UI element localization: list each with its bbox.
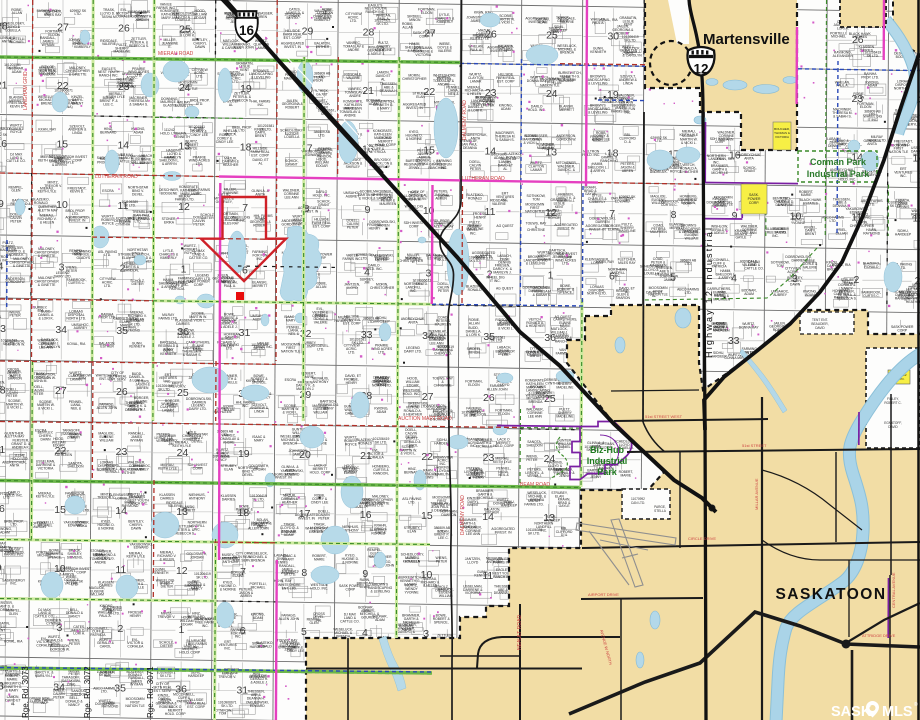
svg-text:SCHOLZ,DIETER: SCHOLZ,DIETER bbox=[130, 279, 145, 286]
svg-text:HILLSIDEFARM REALEST. CORP: HILLSIDEFARM REALEST. CORP bbox=[496, 73, 515, 84]
svg-text:PETERS,JASON &ABREN: PETERS,JASON &ABREN bbox=[434, 190, 449, 201]
svg-text:28: 28 bbox=[0, 21, 8, 33]
svg-text:ROBERT,MARIE: ROBERT,MARIE bbox=[312, 554, 327, 561]
svg-text:GUNTER,WILLIAMDANIEL: GUNTER,WILLIAMDANIEL bbox=[557, 438, 572, 449]
svg-text:DOELL,CALVINPETER: DOELL,CALVINPETER bbox=[318, 510, 330, 521]
svg-text:MACRINER,THERESA M.& SABAH S.: MACRINER,THERESA M.& SABAH S. bbox=[129, 96, 149, 107]
svg-text:101206419SK LTD.: 101206419SK LTD. bbox=[373, 437, 390, 444]
svg-text:Rge. Rd. 3073: Rge. Rd. 3073 bbox=[21, 666, 30, 718]
svg-text:34: 34 bbox=[422, 330, 434, 342]
svg-text:25: 25 bbox=[544, 393, 556, 405]
svg-text:26: 26 bbox=[485, 28, 497, 40]
svg-text:4: 4 bbox=[0, 261, 4, 273]
svg-text:15: 15 bbox=[423, 145, 435, 157]
svg-text:NEAULT ROAD: NEAULT ROAD bbox=[517, 615, 523, 650]
svg-text:10: 10 bbox=[56, 199, 68, 211]
svg-text:WURTZ,ROBERTROYCE: WURTZ,ROBERTROYCE bbox=[101, 215, 115, 226]
svg-text:34: 34 bbox=[53, 682, 65, 694]
svg-text:23: 23 bbox=[852, 93, 864, 105]
svg-text:5: 5 bbox=[301, 626, 307, 638]
svg-text:NIENHUIS,ANTHONY: NIENHUIS,ANTHONY bbox=[486, 557, 503, 564]
svg-text:CORP.: CORP. bbox=[749, 201, 760, 205]
svg-text:KKHN, RAY: KKHN, RAY bbox=[596, 260, 615, 264]
svg-text:HOOD,WILLIAMEDGAR: HOOD,WILLIAMEDGAR bbox=[343, 464, 357, 475]
svg-text:RIDSDALE,VALERIE: RIDSDALE,VALERIE bbox=[344, 72, 362, 79]
svg-text:Biz-Hub: Biz-Hub bbox=[590, 445, 624, 455]
svg-text:3: 3 bbox=[59, 262, 65, 274]
svg-text:23: 23 bbox=[485, 87, 497, 99]
svg-text:CAN LTD.: CAN LTD. bbox=[631, 501, 645, 505]
svg-text:MIERAU ROAD: MIERAU ROAD bbox=[158, 51, 194, 57]
svg-text:DOELL,CALVINPETER: DOELL,CALVINPETER bbox=[32, 385, 44, 396]
svg-text:PETERS,JASON &ABREN: PETERS,JASON &ABREN bbox=[239, 587, 254, 598]
svg-text:ROBERT,MARIE: ROBERT,MARIE bbox=[799, 190, 814, 197]
svg-text:RAYMOND,ALEXANDER: RAYMOND,ALEXANDER bbox=[833, 51, 854, 58]
svg-text:27: 27 bbox=[55, 385, 67, 397]
svg-text:12: 12 bbox=[693, 62, 708, 77]
svg-text:MLS: MLS bbox=[882, 704, 913, 720]
svg-text:AG QUEST: AG QUEST bbox=[554, 315, 571, 319]
svg-text:27: 27 bbox=[422, 391, 434, 403]
svg-text:ATTRIDGE DRIVE: ATTRIDGE DRIVE bbox=[862, 633, 896, 638]
svg-text:20: 20 bbox=[299, 449, 311, 461]
svg-text:CENTRAL AVENUE: CENTRAL AVENUE bbox=[891, 572, 896, 608]
svg-text:Park: Park bbox=[597, 467, 618, 477]
svg-text:USSELMAN,DARRENE &VICTORIA: USSELMAN,DARRENE &VICTORIA bbox=[36, 460, 56, 471]
svg-text:MACRINER,THERESA M.& SABAH S.: MACRINER,THERESA M.& SABAH S. bbox=[495, 131, 515, 142]
svg-text:FAMBROOK,CURTIS C.: FAMBROOK,CURTIS C. bbox=[659, 200, 679, 207]
svg-text:WALDNER,CORINNELEE ANN: WALDNER,CORINNELEE ANN bbox=[283, 189, 301, 200]
svg-text:HILLSIDEFARM REALEST. CORP: HILLSIDEFARM REALEST. CORP bbox=[283, 29, 302, 40]
svg-text:SCOBIE,MARTIN W.& VICKI L.: SCOBIE,MARTIN W.& VICKI L. bbox=[189, 312, 207, 323]
svg-text:LEGENDDAIRY LTD.: LEGENDDAIRY LTD. bbox=[404, 346, 422, 353]
svg-text:MACRINER,THERESA M.& SABAH S.: MACRINER,THERESA M.& SABAH S. bbox=[832, 108, 852, 119]
svg-text:USSELMAN,DARRENE &VICTORIA: USSELMAN,DARRENE &VICTORIA bbox=[414, 46, 434, 57]
svg-text:BLAZEIKO,RONALD: BLAZEIKO,RONALD bbox=[504, 152, 521, 159]
svg-text:22: 22 bbox=[57, 80, 69, 92]
svg-text:BORGER,ELAINE: BORGER,ELAINE bbox=[134, 396, 149, 403]
svg-text:GREEN SIDEFARMS LTD.: GREEN SIDEFARMS LTD. bbox=[364, 500, 385, 507]
svg-text:AUCTION MART ROAD: AUCTION MART ROAD bbox=[398, 416, 452, 422]
svg-text:MATLOCK,WILLIAM J.& CAROLYN: MATLOCK,WILLIAM J.& CAROLYN bbox=[41, 338, 61, 349]
svg-text:MAGLIOE,EUGENEWILLIAM: MAGLIOE,EUGENEWILLIAM bbox=[683, 230, 699, 241]
svg-text:BLAZEIKO,RONALD: BLAZEIKO,RONALD bbox=[32, 198, 49, 205]
svg-text:SASK: SASK bbox=[831, 704, 872, 720]
svg-text:LEGENDDAIRY LTD.: LEGENDDAIRY LTD. bbox=[189, 404, 207, 411]
svg-text:LUTHERAN ROAD: LUTHERAN ROAD bbox=[95, 174, 138, 180]
svg-text:VICTORIA: VICTORIA bbox=[775, 135, 789, 139]
svg-text:KKHN, RAY: KKHN, RAY bbox=[246, 379, 265, 383]
svg-text:SCOBIE,MARTIN W.& VICKI L.: SCOBIE,MARTIN W.& VICKI L. bbox=[6, 399, 24, 410]
svg-text:SCOBIE,MARTIN W.& VICKI L.: SCOBIE,MARTIN W.& VICKI L. bbox=[282, 404, 300, 415]
svg-text:ROBIE,ALLAN: ROBIE,ALLAN bbox=[469, 318, 481, 325]
svg-text:PETERS,JASON &ABREN: PETERS,JASON &ABREN bbox=[136, 379, 151, 390]
svg-text:21: 21 bbox=[0, 79, 8, 91]
svg-text:5: 5 bbox=[670, 271, 676, 283]
svg-text:®: ® bbox=[914, 701, 918, 708]
svg-text:3: 3 bbox=[425, 267, 431, 279]
svg-text:9: 9 bbox=[365, 204, 371, 216]
svg-text:KINZEL,DARYLBRENT: KINZEL,DARYLBRENT bbox=[804, 225, 817, 236]
svg-text:KOVAL, RIA: KOVAL, RIA bbox=[599, 18, 618, 22]
svg-text:NIENHUIS,ANTHONY: NIENHUIS,ANTHONY bbox=[222, 557, 239, 564]
svg-text:2: 2 bbox=[853, 274, 859, 286]
svg-text:7: 7 bbox=[242, 202, 248, 214]
svg-text:SASKATOON: SASKATOON bbox=[775, 586, 886, 603]
svg-text:MACRINER,THERESA M.& SABAH S.: MACRINER,THERESA M.& SABAH S. bbox=[182, 346, 202, 357]
svg-text:SCHICK,GRANT: SCHICK,GRANT bbox=[556, 16, 570, 23]
svg-text:19: 19 bbox=[238, 448, 250, 460]
svg-text:GREEN SIDEFARMS LTD.: GREEN SIDEFARMS LTD. bbox=[29, 697, 50, 704]
svg-text:101201581SK LTD.: 101201581SK LTD. bbox=[4, 63, 21, 70]
svg-text:12: 12 bbox=[545, 207, 557, 219]
svg-text:AG QUEST: AG QUEST bbox=[496, 224, 513, 228]
svg-text:36: 36 bbox=[175, 683, 187, 695]
svg-text:GUENTHER,ALETTA MAY: GUENTHER,ALETTA MAY bbox=[4, 431, 25, 438]
svg-text:DOELL,CALVINPETER: DOELL,CALVINPETER bbox=[437, 282, 449, 293]
svg-text:23: 23 bbox=[116, 446, 128, 458]
svg-text:FLETCHER,MILES RAY: FLETCHER,MILES RAY bbox=[618, 258, 637, 265]
svg-text:LANGHAM GRID: LANGHAM GRID bbox=[23, 71, 29, 110]
svg-text:21: 21 bbox=[360, 450, 372, 462]
svg-text:101206419SK LTD.: 101206419SK LTD. bbox=[461, 410, 478, 417]
svg-text:DAVID: DAVID bbox=[815, 326, 825, 330]
svg-text:SCHOLZ,DIETER: SCHOLZ,DIETER bbox=[159, 641, 174, 648]
svg-text:WHELAN,PAUL A.: WHELAN,PAUL A. bbox=[468, 45, 483, 52]
svg-text:33: 33 bbox=[361, 329, 373, 341]
svg-text:31: 31 bbox=[236, 684, 248, 696]
svg-text:FAMBROOK,CURTIS C.: FAMBROOK,CURTIS C. bbox=[861, 291, 881, 298]
svg-text:6: 6 bbox=[240, 625, 246, 637]
svg-text:18: 18 bbox=[607, 148, 619, 160]
svg-text:24: 24 bbox=[177, 447, 189, 459]
svg-text:30: 30 bbox=[607, 30, 619, 42]
svg-text:1: 1 bbox=[178, 624, 184, 636]
svg-text:ROBERT C.: ROBERT C. bbox=[884, 401, 901, 405]
svg-text:101201581SK LTD.: 101201581SK LTD. bbox=[1, 339, 18, 346]
svg-text:8: 8 bbox=[671, 209, 677, 221]
svg-text:51st STREET WEST: 51st STREET WEST bbox=[645, 414, 683, 419]
svg-text:BRAMMER,GARTH &MICHELLE: BRAMMER,GARTH &MICHELLE bbox=[475, 438, 493, 449]
svg-text:SCHOLZ,DIETER: SCHOLZ,DIETER bbox=[200, 213, 215, 220]
svg-text:22: 22 bbox=[424, 86, 436, 98]
svg-text:101206419SK LTD.: 101206419SK LTD. bbox=[622, 35, 639, 42]
svg-text:1: 1 bbox=[181, 263, 187, 275]
svg-text:MIERAU,RICHARD V.& HELEN: MIERAU,RICHARD V.& HELEN bbox=[157, 551, 176, 562]
svg-text:DOELL,CALVINPETER: DOELL,CALVINPETER bbox=[405, 428, 417, 439]
svg-text:SCOBIE,MARTIN W.& VICKI L.: SCOBIE,MARTIN W.& VICKI L. bbox=[37, 400, 55, 411]
svg-text:HONBERG,CURTIS &RANDON,: HONBERG,CURTIS &RANDON, bbox=[315, 148, 333, 159]
svg-text:KOVAL, RIA: KOVAL, RIA bbox=[67, 342, 86, 346]
svg-text:WIENS,PETER: WIENS,PETER bbox=[436, 556, 448, 563]
svg-text:26: 26 bbox=[116, 386, 128, 398]
svg-text:LEGENDDAIRY LTD.: LEGENDDAIRY LTD. bbox=[193, 274, 211, 281]
svg-text:MAGLIOE,EUGENEWILLIAM: MAGLIOE,EUGENEWILLIAM bbox=[89, 586, 105, 597]
svg-text:SCOBIE,MARTIN W.& VICKI L.: SCOBIE,MARTIN W.& VICKI L. bbox=[523, 134, 541, 145]
svg-text:BLANSKI,MERRITT: BLANSKI,MERRITT bbox=[559, 104, 574, 111]
svg-text:27: 27 bbox=[57, 22, 69, 34]
svg-text:HOOD,WILLIAMEDGAR: HOOD,WILLIAMEDGAR bbox=[315, 157, 329, 168]
svg-text:18: 18 bbox=[238, 507, 250, 519]
svg-text:WISHLOW,GERALD R.& ADELE J.: WISHLOW,GERALD R.& ADELE J. bbox=[220, 318, 238, 329]
svg-text:BRAMMER,GARTH &MICHELLE: BRAMMER,GARTH &MICHELLE bbox=[476, 489, 494, 500]
svg-text:HASKINS,LLOYD &MARILYN: HASKINS,LLOYD &MARILYN bbox=[434, 466, 450, 477]
svg-text:BLAZEIKO,RONALD: BLAZEIKO,RONALD bbox=[863, 262, 880, 269]
svg-text:CIRCLE DRIVE: CIRCLE DRIVE bbox=[688, 536, 716, 541]
svg-text:MACRINER,THERESA M.& SABAH S.: MACRINER,THERESA M.& SABAH S. bbox=[532, 286, 552, 297]
svg-text:WESTSIDEHOLD. INC.: WESTSIDEHOLD. INC. bbox=[403, 388, 421, 395]
svg-text:16: 16 bbox=[0, 503, 5, 515]
svg-text:DAVID: DAVID bbox=[888, 425, 898, 429]
svg-text:KRAHN,BRAD &GAYLE: KRAHN,BRAD &GAYLE bbox=[735, 229, 748, 240]
svg-text:UMSAHOC,AUBREY: UMSAHOC,AUBREY bbox=[71, 323, 89, 330]
svg-text:7: 7 bbox=[609, 208, 615, 220]
svg-text:REIMER,GLEN &SHARON: REIMER,GLEN &SHARON bbox=[616, 289, 631, 300]
svg-text:SCHICK,GRANT: SCHICK,GRANT bbox=[743, 166, 757, 173]
svg-text:11: 11 bbox=[485, 206, 496, 218]
svg-text:14: 14 bbox=[482, 511, 494, 523]
svg-text:NIENHUIS,ANTHONY: NIENHUIS,ANTHONY bbox=[189, 493, 206, 500]
svg-text:101201581SK LTD.: 101201581SK LTD. bbox=[188, 125, 205, 132]
svg-text:Highway 12 Industrial: Highway 12 Industrial bbox=[704, 226, 714, 358]
svg-text:DESCHNER,BODGENE: DESCHNER,BODGENE bbox=[159, 188, 179, 195]
svg-text:14: 14 bbox=[484, 146, 496, 158]
svg-text:HASKINS,LLOYD &MARILYN: HASKINS,LLOYD &MARILYN bbox=[713, 321, 729, 332]
svg-text:35: 35 bbox=[114, 683, 126, 695]
svg-text:29: 29 bbox=[302, 25, 314, 37]
svg-text:13: 13 bbox=[543, 512, 555, 524]
svg-text:ROBIE,ALLAN: ROBIE,ALLAN bbox=[315, 282, 327, 289]
svg-text:Rge. Rd. 3071: Rge. Rd. 3071 bbox=[146, 666, 155, 718]
svg-text:MITCHENER,WALDNER,DAVID C. &: MITCHENER,WALDNER,DAVID C. & bbox=[396, 623, 417, 634]
svg-text:14: 14 bbox=[117, 140, 129, 152]
svg-text:PENNEL,LIANA,NEIL &: PENNEL,LIANA,NEIL & bbox=[69, 400, 83, 411]
svg-text:KOVAL, RIA: KOVAL, RIA bbox=[4, 639, 23, 643]
svg-text:BLANSKI,MERRITT: BLANSKI,MERRITT bbox=[252, 281, 267, 288]
svg-text:Rge. Rd. 3072: Rge. Rd. 3072 bbox=[83, 666, 92, 718]
svg-text:19: 19 bbox=[240, 83, 252, 95]
svg-text:FRIESEN,DARCY K. &MARILYN J.: FRIESEN,DARCY K. &MARILYN J. bbox=[493, 264, 513, 275]
svg-text:RIDSDALE,VALERIE: RIDSDALE,VALERIE bbox=[490, 198, 508, 205]
svg-text:SIRDEEL,MINON: SIRDEEL,MINON bbox=[467, 347, 482, 354]
svg-text:28: 28 bbox=[0, 384, 6, 396]
svg-text:10: 10 bbox=[421, 569, 433, 581]
svg-text:13: 13 bbox=[176, 506, 188, 518]
svg-text:KOMGRATE,KATHLEENMARY ANN: KOMGRATE,KATHLEENMARY ANN bbox=[179, 185, 199, 196]
svg-text:BALATON,ESTHER: BALATON,ESTHER bbox=[426, 253, 442, 260]
svg-text:9: 9 bbox=[0, 198, 4, 210]
svg-text:WIEBE,DOYLE &VALERIE: WIEBE,DOYLE &VALERIE bbox=[64, 575, 79, 586]
svg-text:KKHN, RAY: KKHN, RAY bbox=[38, 128, 57, 132]
svg-text:17: 17 bbox=[299, 508, 311, 520]
svg-text:1: 1 bbox=[548, 269, 554, 281]
svg-text:33: 33 bbox=[728, 335, 740, 347]
svg-text:KRAHN,BRAD &GAYLE: KRAHN,BRAD &GAYLE bbox=[584, 185, 597, 196]
svg-text:WIENS,PETER: WIENS,PETER bbox=[68, 639, 80, 646]
svg-text:101157921SK LTD.: 101157921SK LTD. bbox=[374, 19, 391, 26]
svg-text:FREISTADT,KEVIN D.: FREISTADT,KEVIN D. bbox=[68, 186, 87, 193]
svg-text:FROESE,HENRY: FROESE,HENRY bbox=[128, 611, 143, 618]
svg-text:WISHLOW,GERALD R.& ADELE J.: WISHLOW,GERALD R.& ADELE J. bbox=[250, 674, 268, 685]
svg-text:27: 27 bbox=[424, 27, 436, 39]
svg-text:16: 16 bbox=[239, 23, 255, 38]
svg-text:18: 18 bbox=[240, 142, 252, 154]
svg-text:23: 23 bbox=[118, 81, 130, 93]
svg-text:Industrial: Industrial bbox=[587, 456, 628, 466]
svg-text:32: 32 bbox=[300, 328, 312, 340]
svg-text:15: 15 bbox=[421, 510, 433, 522]
svg-text:8: 8 bbox=[301, 567, 307, 579]
svg-text:25: 25 bbox=[177, 387, 189, 399]
svg-text:19: 19 bbox=[607, 89, 619, 101]
svg-text:PENNEL,LIANA,NEIL &: PENNEL,LIANA,NEIL & bbox=[496, 466, 510, 477]
svg-text:BLAZEIKO,RONALD: BLAZEIKO,RONALD bbox=[356, 438, 373, 445]
svg-text:4: 4 bbox=[731, 272, 737, 284]
svg-text:25: 25 bbox=[179, 23, 191, 35]
svg-text:SIRDEEL,MINON: SIRDEEL,MINON bbox=[407, 15, 422, 22]
svg-text:WISHLOW,GERALD R.& ADELE J.: WISHLOW,GERALD R.& ADELE J. bbox=[367, 45, 385, 56]
svg-text:ROBIE,ALLAN: ROBIE,ALLAN bbox=[11, 8, 23, 15]
svg-text:24: 24 bbox=[544, 453, 556, 465]
svg-text:22: 22 bbox=[55, 445, 67, 457]
svg-text:51st STREET: 51st STREET bbox=[742, 443, 767, 448]
svg-text:WESELUCK,MICHAEL &BRENDA: WESELUCK,MICHAEL &BRENDA bbox=[333, 628, 353, 639]
svg-text:35: 35 bbox=[483, 331, 495, 343]
svg-text:BORGER,ELAINE: BORGER,ELAINE bbox=[165, 399, 180, 406]
svg-text:TREMBLAY,JEAN PAUL& DEANNA: TREMBLAY,JEAN PAUL& DEANNA bbox=[431, 502, 450, 513]
svg-text:PORTELLI,MICHAEL: PORTELLI,MICHAEL bbox=[830, 31, 847, 38]
svg-text:WURTZ,ROBERTROYCE: WURTZ,ROBERTROYCE bbox=[183, 244, 197, 255]
svg-text:26: 26 bbox=[483, 392, 495, 404]
svg-text:26: 26 bbox=[852, 34, 864, 46]
svg-text:WIEBE,DOYLE &VALERIE: WIEBE,DOYLE &VALERIE bbox=[438, 42, 453, 53]
svg-text:34: 34 bbox=[55, 324, 67, 336]
svg-text:MIERAU,RICHARD V.& HELEN: MIERAU,RICHARD V.& HELEN bbox=[37, 214, 56, 225]
svg-text:4: 4 bbox=[0, 621, 1, 633]
svg-text:KINZEL,DARYLBRENT: KINZEL,DARYLBRENT bbox=[158, 694, 171, 705]
svg-text:ANDERSON,GORDON W.: ANDERSON,GORDON W. bbox=[50, 644, 70, 651]
svg-text:101206419SK LTD.: 101206419SK LTD. bbox=[156, 384, 173, 391]
svg-text:101206419SK LTD.: 101206419SK LTD. bbox=[194, 572, 211, 579]
svg-text:WALDNER,CORINNELEE ANN: WALDNER,CORINNELEE ANN bbox=[526, 408, 544, 419]
svg-text:11: 11 bbox=[118, 200, 129, 212]
svg-text:WESELUCK,MICHAEL &BRENDA: WESELUCK,MICHAEL &BRENDA bbox=[557, 44, 577, 55]
svg-text:MATLOCK,WILLIAM J.& CAROLYN: MATLOCK,WILLIAM J.& CAROLYN bbox=[623, 47, 643, 58]
svg-text:101206419SK LTD.: 101206419SK LTD. bbox=[282, 569, 299, 576]
svg-text:SANOTA,SHELDON: SANOTA,SHELDON bbox=[67, 461, 84, 468]
svg-text:ESCRA: ESCRA bbox=[35, 428, 47, 432]
svg-text:AIRPORT DRIVE: AIRPORT DRIVE bbox=[588, 592, 619, 597]
svg-text:10: 10 bbox=[790, 211, 802, 223]
svg-text:ROBERT,MARIE: ROBERT,MARIE bbox=[5, 674, 20, 681]
svg-text:35: 35 bbox=[116, 325, 128, 337]
svg-text:KLASSENDAIRIES: KLASSENDAIRIES bbox=[221, 494, 237, 501]
svg-text:12: 12 bbox=[178, 201, 190, 213]
svg-text:PETERS,LEROY L. &VERNA J.: PETERS,LEROY L. &VERNA J. bbox=[525, 467, 544, 478]
svg-text:KLASSENDAIRIES: KLASSENDAIRIES bbox=[159, 493, 175, 500]
svg-text:WURTZ,ROBERTROYCE: WURTZ,ROBERTROYCE bbox=[9, 123, 23, 134]
svg-text:KRAHN,BRAD &GAYLE: KRAHN,BRAD &GAYLE bbox=[558, 497, 571, 508]
svg-text:DOELL,CALVINPETER: DOELL,CALVINPETER bbox=[6, 387, 18, 398]
svg-text:MAGLIOE,EUGENEWILLIAM: MAGLIOE,EUGENEWILLIAM bbox=[98, 432, 114, 443]
svg-text:23: 23 bbox=[483, 452, 495, 464]
svg-text:13: 13 bbox=[178, 141, 190, 153]
svg-text:11: 11 bbox=[482, 570, 493, 582]
svg-text:FAMBROOK,CURTIS C.: FAMBROOK,CURTIS C. bbox=[67, 278, 87, 285]
svg-text:16: 16 bbox=[729, 150, 741, 162]
svg-text:14: 14 bbox=[115, 505, 127, 517]
svg-text:HOOD,WILLIAMEDGAR: HOOD,WILLIAMEDGAR bbox=[406, 377, 420, 388]
svg-text:101206419SK LTD.: 101206419SK LTD. bbox=[437, 345, 454, 352]
svg-text:9: 9 bbox=[0, 562, 2, 574]
svg-text:RIDSDALE,VALERIE: RIDSDALE,VALERIE bbox=[100, 39, 118, 46]
svg-text:STELLA: STELLA bbox=[654, 509, 667, 513]
svg-text:MILLAR AVENUE: MILLAR AVENUE bbox=[754, 478, 759, 510]
svg-text:WHELAN,PAUL A.: WHELAN,PAUL A. bbox=[835, 80, 850, 87]
svg-text:HILLSIDEFARM REALEST. CORP: HILLSIDEFARM REALEST. CORP bbox=[312, 218, 331, 229]
svg-text:BORGER,ELAINE: BORGER,ELAINE bbox=[606, 224, 621, 231]
svg-text:FLETCHER,MILES RAY: FLETCHER,MILES RAY bbox=[44, 10, 63, 17]
svg-text:SCHICK,GRANT: SCHICK,GRANT bbox=[317, 199, 331, 206]
svg-text:21: 21 bbox=[362, 85, 374, 97]
svg-text:BLAZEIKO,RONALD: BLAZEIKO,RONALD bbox=[256, 641, 273, 648]
svg-text:2: 2 bbox=[120, 263, 126, 275]
svg-text:33: 33 bbox=[0, 323, 6, 335]
svg-text:15: 15 bbox=[54, 504, 66, 516]
svg-text:SANOTA,SHELDON: SANOTA,SHELDON bbox=[526, 440, 543, 447]
svg-text:PENNEL,LIANA,NEIL &: PENNEL,LIANA,NEIL & bbox=[446, 85, 460, 96]
svg-text:24: 24 bbox=[546, 88, 558, 100]
svg-text:BEAM ROAD: BEAM ROAD bbox=[520, 482, 550, 488]
svg-text:ZETTLER,PETER A. &REBECCA S.: ZETTLER,PETER A. &REBECCA S. bbox=[129, 37, 149, 48]
svg-text:7: 7 bbox=[240, 566, 246, 578]
svg-text:31: 31 bbox=[239, 327, 251, 339]
svg-text:BLANSKI,MERRITT: BLANSKI,MERRITT bbox=[669, 223, 684, 230]
svg-text:BLAZEIKO,RONALD: BLAZEIKO,RONALD bbox=[466, 193, 483, 200]
svg-text:36: 36 bbox=[177, 326, 189, 338]
svg-text:12: 12 bbox=[176, 565, 188, 577]
svg-text:SCHOLZ,DIETER: SCHOLZ,DIETER bbox=[374, 255, 389, 262]
svg-text:FROESE,HENRY: FROESE,HENRY bbox=[367, 223, 382, 230]
svg-text:ZETTLER,PETER A. &REBECCA S.: ZETTLER,PETER A. &REBECCA S. bbox=[837, 290, 857, 301]
svg-text:36: 36 bbox=[544, 332, 556, 344]
svg-text:MIERAU,RICHARD V.& HELEN: MIERAU,RICHARD V.& HELEN bbox=[465, 85, 484, 96]
svg-text:ROBIE,ALLAN: ROBIE,ALLAN bbox=[322, 7, 334, 14]
svg-text:ESCRA: ESCRA bbox=[285, 378, 297, 382]
svg-text:WESELUCK,MICHAEL &BRENDA: WESELUCK,MICHAEL &BRENDA bbox=[527, 491, 547, 502]
svg-text:PETERS,JASON &ABREN: PETERS,JASON &ABREN bbox=[620, 162, 635, 173]
svg-text:21: 21 bbox=[0, 444, 5, 456]
svg-text:DALMENY ROAD: DALMENY ROAD bbox=[462, 100, 468, 140]
svg-text:AG QUEST: AG QUEST bbox=[496, 286, 513, 290]
svg-text:BLAZEIKO,RONALD: BLAZEIKO,RONALD bbox=[370, 528, 387, 535]
svg-text:101206419SK LTD.: 101206419SK LTD. bbox=[250, 494, 267, 501]
svg-text:HILLSIDEFARM REALEST. CORP: HILLSIDEFARM REALEST. CORP bbox=[251, 147, 270, 158]
svg-text:16: 16 bbox=[360, 509, 372, 521]
svg-text:DYCK,PHILIPHENRY: DYCK,PHILIPHENRY bbox=[473, 469, 485, 480]
svg-text:DALMENY ROAD: DALMENY ROAD bbox=[460, 495, 466, 535]
svg-text:13: 13 bbox=[545, 147, 557, 159]
svg-text:ANDERSON,GORDON W.: ANDERSON,GORDON W. bbox=[556, 134, 576, 141]
svg-text:6: 6 bbox=[609, 270, 615, 282]
svg-text:BRAMMER,GARTH &MICHELLE: BRAMMER,GARTH &MICHELLE bbox=[711, 164, 729, 175]
svg-text:SCOBIE,MARTIN W.& VICKI L.: SCOBIE,MARTIN W.& VICKI L. bbox=[358, 190, 376, 201]
svg-text:Corman Park: Corman Park bbox=[810, 157, 867, 167]
svg-text:Industrial Park: Industrial Park bbox=[807, 169, 871, 179]
svg-text:16: 16 bbox=[0, 138, 7, 150]
svg-text:FERSTER,GRANT D. &ANDREA K.: FERSTER,GRANT D. &ANDREA K. bbox=[0, 601, 15, 612]
svg-text:26: 26 bbox=[118, 23, 130, 35]
